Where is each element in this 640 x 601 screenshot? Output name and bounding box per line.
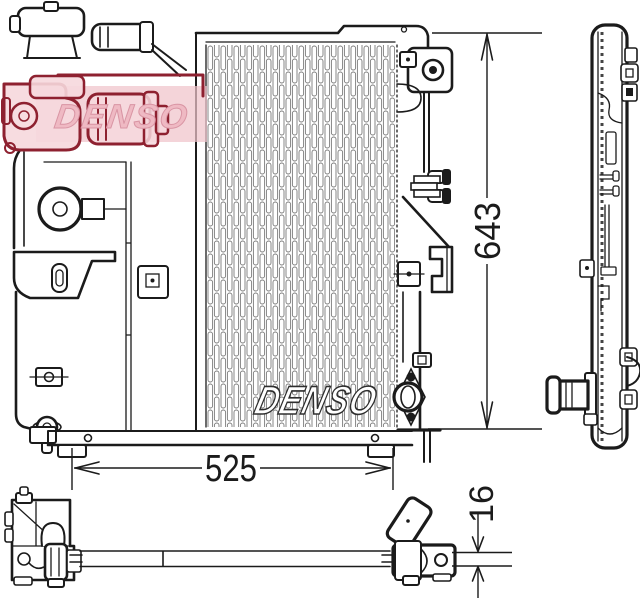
top-view-left-tank <box>5 487 81 587</box>
height-dimension-label: 643 <box>467 202 508 260</box>
denso-core-logo: DENSO <box>251 378 382 423</box>
drawing-canvas: DENSO DENSO 643 525 <box>0 0 640 601</box>
svg-text:DENSO: DENSO <box>52 98 191 136</box>
core-fin-texture <box>207 45 395 427</box>
denso-stamp-logo: DENSO <box>52 98 191 136</box>
red-stamp-overlay: DENSO <box>2 75 207 153</box>
depth-dimension-label: 16 <box>463 485 501 523</box>
side-outlet-pipe <box>547 373 596 417</box>
radiator-technical-drawing: DENSO DENSO 643 525 <box>0 0 640 601</box>
width-dimension-label: 525 <box>205 448 257 490</box>
svg-text:DENSO: DENSO <box>251 378 382 423</box>
